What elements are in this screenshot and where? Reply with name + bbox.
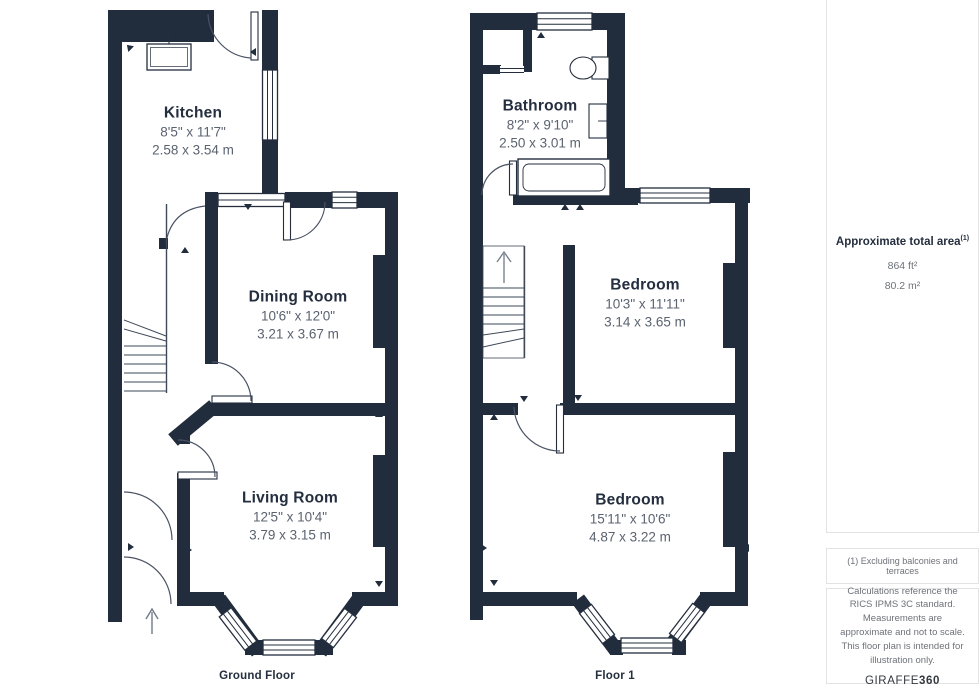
- footnote-text: (1) Excluding balconies and terraces: [827, 556, 978, 576]
- bedroom2-door-arc: [514, 407, 560, 451]
- room-dim-imperial: 10'3" x 11'11": [604, 296, 686, 314]
- room-dim-imperial: 15'11" x 10'6": [589, 511, 671, 529]
- room-name: Living Room: [242, 488, 338, 508]
- room-name: Bedroom: [604, 275, 686, 295]
- brand-suffix: 360: [919, 675, 940, 687]
- room-dim-metric: 2.50 x 3.01 m: [499, 134, 581, 152]
- room-dim-imperial: 10'6" x 12'0": [249, 308, 348, 326]
- dining-ne-door-leaf: [284, 202, 291, 240]
- room-dim-metric: 3.79 x 3.15 m: [242, 526, 338, 544]
- dining-sw-door-arc: [212, 362, 251, 401]
- total-area-m: 80.2 m²: [885, 277, 921, 297]
- bay-window-center-f1: [621, 638, 673, 653]
- hall-door-arc: [166, 206, 205, 242]
- room-label-bedroom-1: Bedroom 10'3" x 11'11" 3.14 x 3.65 m: [604, 275, 686, 330]
- dining-sw-door-leaf: [212, 396, 252, 403]
- brand-name: GIRAFFE: [865, 675, 919, 687]
- disclaimer-box: Calculations reference the RICS IPMS 3C …: [826, 588, 979, 684]
- bay-window-center: [263, 640, 315, 655]
- giraffe360-logo: GIRAFFE360: [865, 675, 940, 687]
- bathroom-door-arc: [482, 164, 513, 195]
- caption-floor-1: Floor 1: [595, 670, 635, 682]
- kitchen-door-arc: [208, 14, 251, 58]
- bathroom-door-leaf: [510, 161, 517, 195]
- footnote-box: (1) Excluding balconies and terraces: [826, 548, 979, 584]
- bedroom2-door-leaf: [557, 405, 564, 453]
- bedroom1-window: [640, 188, 710, 203]
- room-label-kitchen: Kitchen 8'5" x 11'7" 2.58 x 3.54 m: [152, 103, 234, 158]
- info-panel: Approximate total area(1) 864 ft² 80.2 m…: [826, 0, 980, 693]
- bathroom-window: [537, 13, 592, 30]
- basin: [589, 104, 607, 138]
- room-name: Kitchen: [152, 103, 234, 123]
- room-label-dining-room: Dining Room 10'6" x 12'0" 3.21 x 3.67 m: [249, 287, 348, 342]
- room-dim-imperial: 12'5" x 10'4": [242, 509, 338, 527]
- dining-room-window: [332, 192, 357, 208]
- caption-ground-floor: Ground Floor: [219, 670, 295, 682]
- toilet: [570, 57, 609, 79]
- room-name: Dining Room: [249, 287, 348, 307]
- bay-window-left-f1: [579, 604, 614, 643]
- room-dim-metric: 4.87 x 3.22 m: [589, 528, 671, 546]
- disclaimer-text: Calculations reference the RICS IPMS 3C …: [836, 585, 969, 668]
- room-dim-metric: 2.58 x 3.54 m: [152, 141, 234, 159]
- inner-entrance-door-arc: [124, 557, 171, 604]
- ground-floor-stairs: [124, 204, 167, 393]
- room-label-bathroom: Bathroom 8'2" x 9'10" 2.50 x 3.01 m: [499, 96, 581, 151]
- room-name: Bedroom: [589, 490, 671, 510]
- kitchen-window: [263, 70, 278, 140]
- room-name: Bathroom: [499, 96, 581, 116]
- ground-floor-windows: [218, 70, 357, 655]
- total-area-title-text: Approximate total area: [836, 236, 961, 248]
- room-dim-metric: 3.14 x 3.65 m: [604, 313, 686, 331]
- total-area-ft: 864 ft²: [888, 257, 918, 277]
- room-label-living-room: Living Room 12'5" x 10'4" 3.79 x 3.15 m: [242, 488, 338, 543]
- first-floor-stairs: [483, 246, 525, 358]
- room-label-bedroom-2: Bedroom 15'11" x 10'6" 4.87 x 3.22 m: [589, 490, 671, 545]
- floorplan-page: Kitchen 8'5" x 11'7" 2.58 x 3.54 m Dinin…: [0, 0, 980, 693]
- stairs-up-arrow: [497, 252, 511, 283]
- bathtub: [518, 159, 610, 196]
- total-area-box: Approximate total area(1) 864 ft² 80.2 m…: [826, 0, 979, 533]
- total-area-title: Approximate total area(1): [836, 235, 969, 248]
- room-dim-imperial: 8'2" x 9'10": [499, 117, 581, 135]
- room-dim-imperial: 8'5" x 11'7": [152, 124, 234, 142]
- living-door-leaf: [178, 472, 217, 479]
- entrance-arrow: [146, 609, 158, 634]
- room-dim-metric: 3.21 x 3.67 m: [249, 325, 348, 343]
- entrance-door-arc: [124, 492, 172, 540]
- total-area-footnote-marker: (1): [961, 235, 970, 242]
- closet-sliding-door: [500, 66, 524, 75]
